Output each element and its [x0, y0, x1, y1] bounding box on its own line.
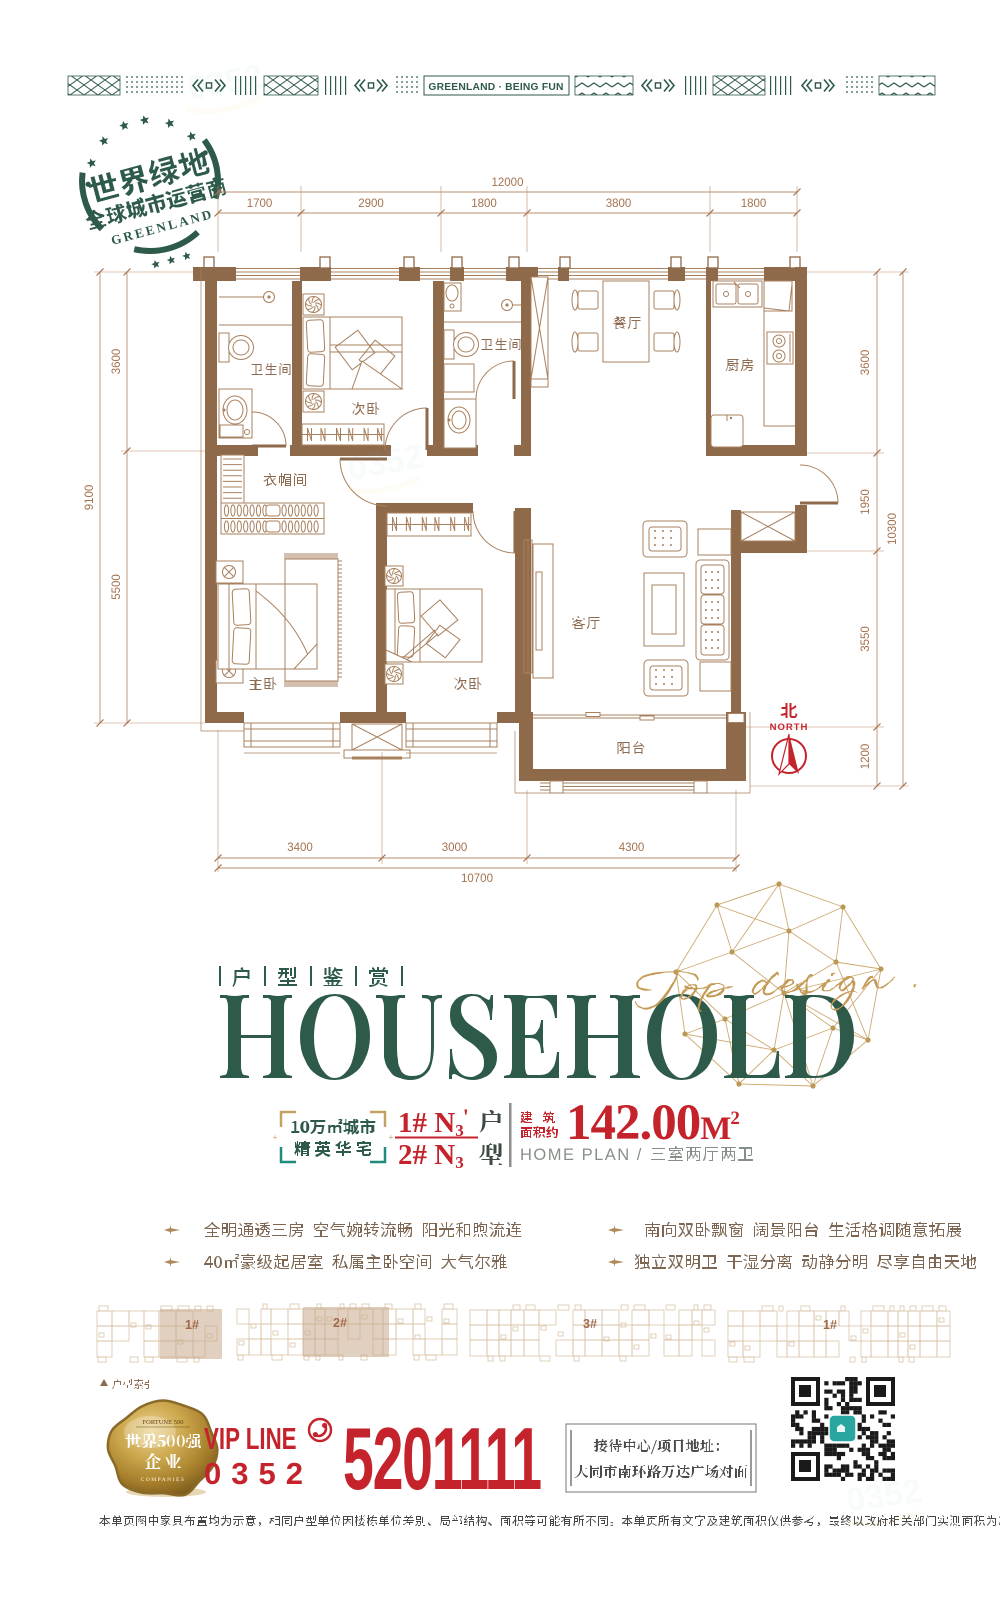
svg-text:GREENLAND · BEING FUN: GREENLAND · BEING FUN [428, 82, 563, 93]
svg-text:5201111: 5201111 [343, 1409, 541, 1508]
svg-text:3550: 3550 [860, 626, 872, 652]
svg-text:3#: 3# [583, 1317, 597, 1331]
svg-text:1#: 1# [823, 1318, 837, 1332]
svg-text:0352: 0352 [204, 1456, 313, 1491]
svg-text:10700: 10700 [461, 873, 493, 885]
svg-text:12000: 12000 [492, 177, 524, 189]
svg-text:COMPANIES: COMPANIES [141, 1477, 186, 1483]
svg-text:3800: 3800 [606, 198, 632, 210]
svg-text:4300: 4300 [619, 842, 645, 854]
svg-text:1#: 1# [185, 1318, 199, 1332]
svg-text:HOME PLAN /: HOME PLAN / [520, 1146, 643, 1164]
svg-text:+: + [273, 1133, 278, 1142]
svg-text:GREENLAND: GREENLAND [109, 206, 215, 248]
svg-text:3600: 3600 [860, 350, 872, 376]
svg-text:1800: 1800 [471, 198, 497, 210]
svg-text:1700: 1700 [247, 198, 273, 210]
svg-text:VIP LINE: VIP LINE [204, 1421, 297, 1455]
svg-text:9100: 9100 [84, 485, 96, 511]
svg-text:FORTUNE 500: FORTUNE 500 [143, 1419, 184, 1426]
svg-text:3400: 3400 [287, 842, 313, 854]
svg-text:1200: 1200 [860, 744, 872, 770]
svg-text:10300: 10300 [887, 513, 899, 545]
svg-text:1# N3': 1# N3' [398, 1104, 469, 1140]
svg-text:3000: 3000 [442, 842, 468, 854]
svg-text:142.00M2: 142.00M2 [566, 1095, 739, 1151]
svg-text:NORTH: NORTH [770, 722, 809, 733]
svg-text:+: + [389, 1133, 394, 1142]
svg-text:2# N3: 2# N3 [398, 1139, 464, 1172]
svg-text:5500: 5500 [111, 574, 123, 600]
svg-text:2#: 2# [333, 1316, 347, 1330]
svg-text:1950: 1950 [860, 489, 872, 515]
svg-text:2900: 2900 [358, 198, 384, 210]
svg-text:1800: 1800 [741, 198, 767, 210]
svg-text:3600: 3600 [111, 349, 123, 375]
